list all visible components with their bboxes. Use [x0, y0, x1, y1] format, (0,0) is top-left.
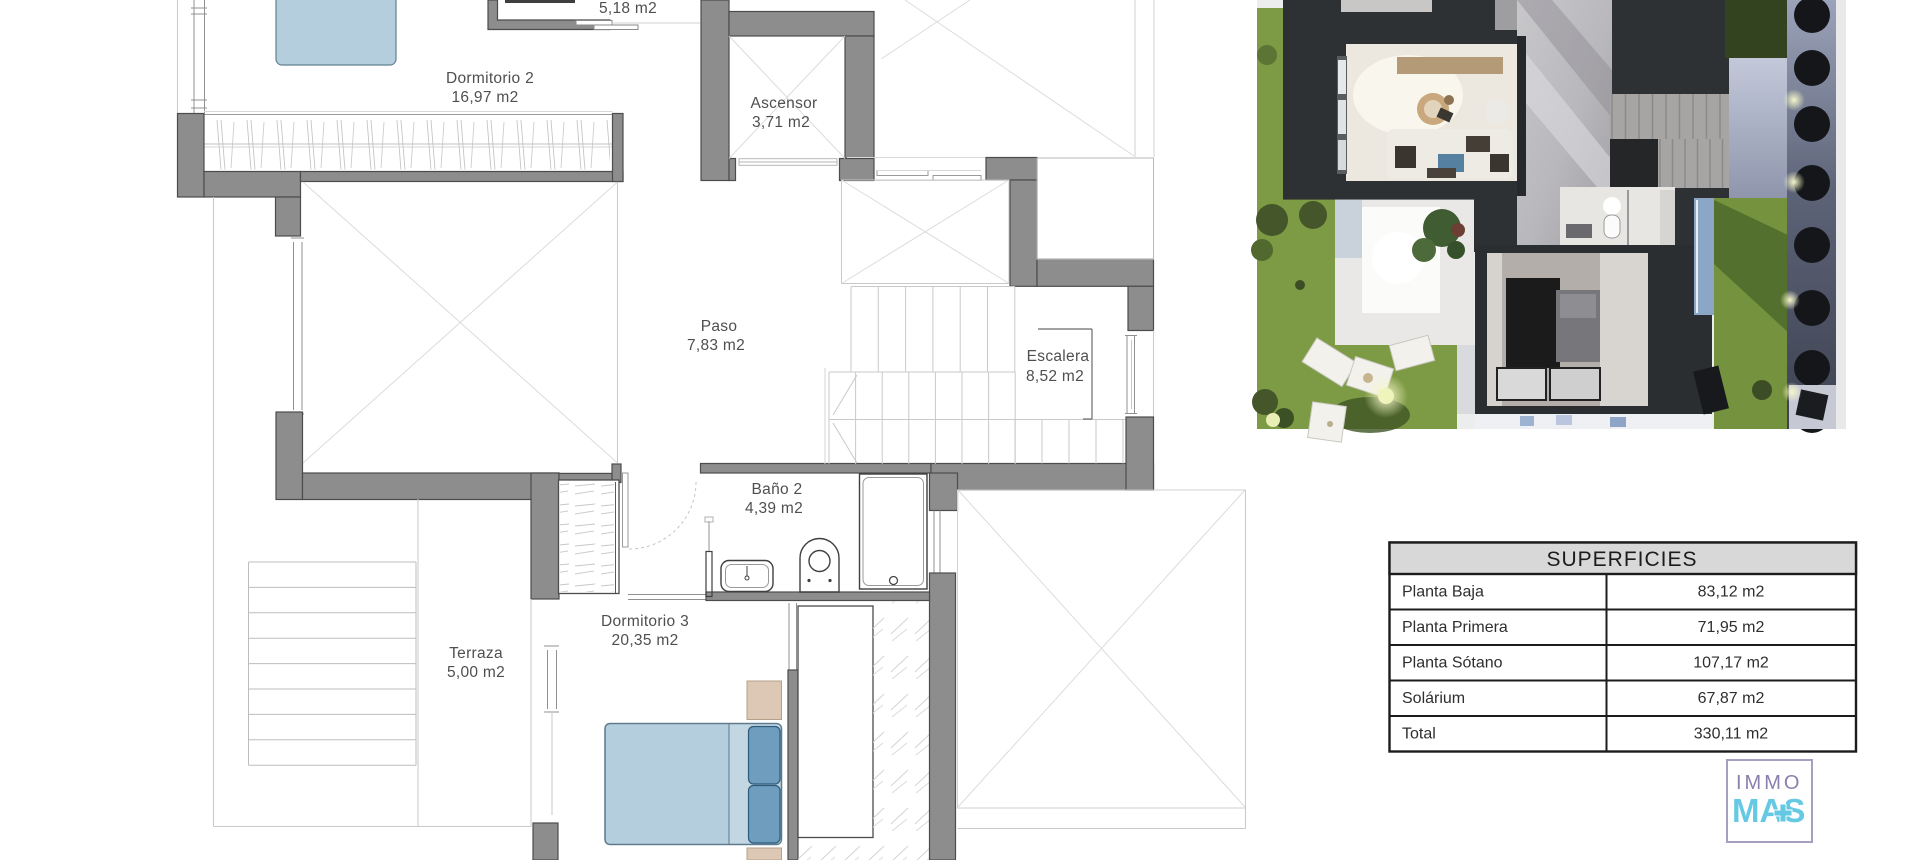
svg-text:Solárium: Solárium	[1402, 690, 1465, 707]
svg-text:67,87 m2: 67,87 m2	[1698, 690, 1765, 707]
svg-text:MAS: MAS	[1732, 792, 1805, 829]
svg-text:330,11 m2: 330,11 m2	[1694, 726, 1769, 743]
svg-text:Total: Total	[1402, 726, 1436, 743]
svg-text:107,17 m2: 107,17 m2	[1693, 655, 1769, 672]
svg-text:Planta Sótano: Planta Sótano	[1402, 655, 1503, 672]
svg-text:71,95 m2: 71,95 m2	[1698, 619, 1765, 636]
svg-text:Planta Baja: Planta Baja	[1402, 584, 1484, 601]
svg-text:Planta Primera: Planta Primera	[1402, 619, 1508, 636]
svg-text:SUPERFICIES: SUPERFICIES	[1546, 548, 1697, 571]
svg-text:IMMO: IMMO	[1736, 772, 1802, 794]
svg-text:83,12 m2: 83,12 m2	[1698, 584, 1765, 601]
